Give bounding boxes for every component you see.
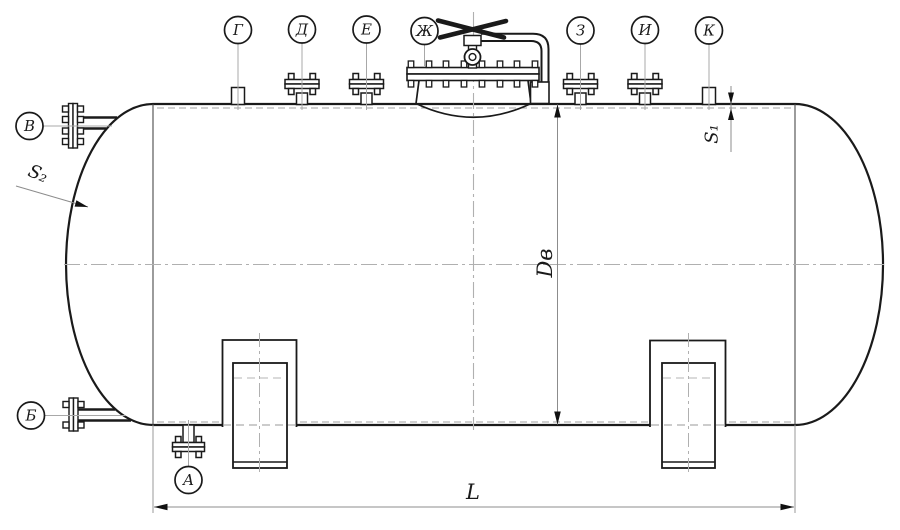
bolt [63,106,69,112]
arrowhead-left [154,504,168,511]
tank-engineering-drawing: Г Д Е Ж З И К В Б А Dв S₁ S₂ [0,0,900,530]
saddle-right [650,333,726,474]
arrowhead [75,200,89,210]
bolt [63,139,69,145]
inner-diameter-label: Dв [533,248,557,278]
saddle-left [223,333,297,474]
bolt [78,117,84,123]
callout-letter-z: З [576,22,585,40]
dimension-length: L [154,480,794,510]
callout-leaders [44,44,710,467]
callout-letter-zh: Ж [415,22,434,40]
manhole-flange-lower [407,74,539,81]
shell-thickness-label: S₁ [702,124,723,144]
arrowhead-down [728,93,734,105]
callout-letter-a: А [182,471,194,489]
bolt [78,402,84,408]
bolt [196,452,202,458]
callout-letter-e: Е [360,21,372,39]
bolt [78,422,84,428]
arrowhead-up [728,109,734,121]
length-label: L [465,480,480,504]
drawing-canvas: Г Д Е Ж З И К В Б А Dв S₁ S₂ [0,0,900,530]
bolt [63,117,69,123]
arrowhead-right [781,504,795,511]
bolt [78,106,84,112]
callout-letter-d: Д [295,21,309,39]
bolt [78,139,84,145]
bolt [176,452,182,458]
callout-letter-k: К [702,22,715,40]
callout-letter-i: И [637,21,652,39]
callout-letter-v: В [23,117,35,135]
bolt [63,422,69,428]
handle-hub [464,36,481,46]
head-thickness-label: S₂ [25,161,51,188]
arrowhead-up [554,105,561,118]
bolt [63,402,69,408]
bolt [63,128,69,134]
bolt [176,437,182,443]
bolt [78,128,84,134]
bolt [196,437,202,443]
arrowhead-down [554,412,561,425]
callout-letter-b: Б [24,407,36,425]
dimension-inner-diameter: Dв [533,105,561,425]
eye-bolt-outer [465,49,481,65]
callout-letter-g: Г [232,21,244,39]
manhole-neck-left [416,81,419,104]
